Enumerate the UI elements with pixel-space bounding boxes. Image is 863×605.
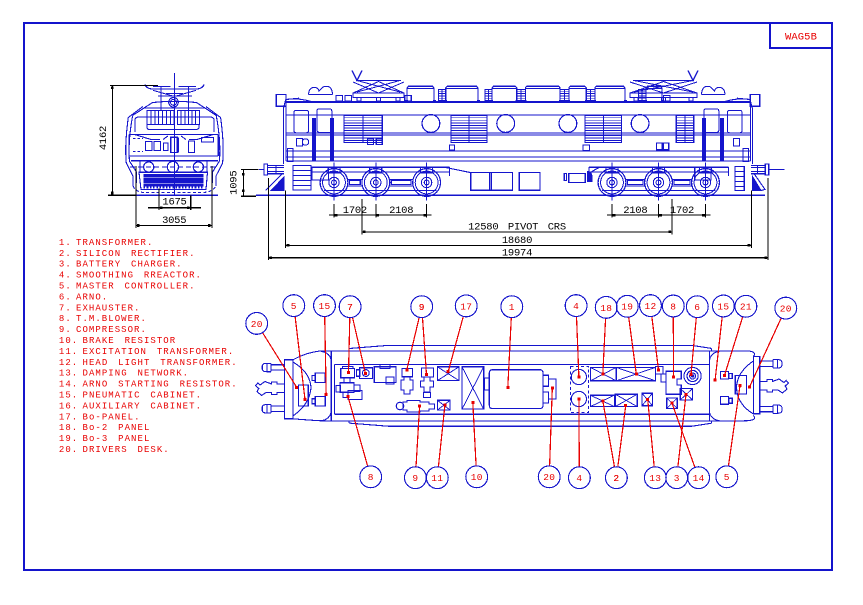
svg-text:20: 20 <box>780 304 792 315</box>
svg-text:14: 14 <box>693 473 705 484</box>
svg-text:20: 20 <box>543 472 555 483</box>
svg-text:4.: 4. <box>59 271 72 281</box>
svg-text:10.: 10. <box>59 336 78 346</box>
svg-text:21: 21 <box>740 302 752 313</box>
svg-text:5.: 5. <box>59 282 72 292</box>
svg-text:4: 4 <box>573 301 579 312</box>
svg-text:12.: 12. <box>59 358 78 368</box>
svg-text:18.: 18. <box>59 423 78 433</box>
svg-text:Bo-3 PANEL: Bo-3 PANEL <box>83 434 151 444</box>
svg-text:20.: 20. <box>59 445 78 455</box>
svg-text:WAG5B: WAG5B <box>785 32 817 44</box>
svg-text:13.: 13. <box>59 369 78 379</box>
svg-text:15.: 15. <box>59 391 78 401</box>
svg-text:SILICON RECTIFIER.: SILICON RECTIFIER. <box>76 249 196 259</box>
svg-text:TRANSFORMER.: TRANSFORMER. <box>76 238 153 248</box>
svg-text:15: 15 <box>717 301 729 312</box>
svg-text:2108: 2108 <box>389 205 413 217</box>
svg-text:T.M.BLOWER.: T.M.BLOWER. <box>76 314 147 324</box>
svg-text:BRAKE RESISTOR: BRAKE RESISTOR <box>83 336 177 346</box>
svg-text:9: 9 <box>412 473 418 484</box>
svg-text:16.: 16. <box>59 401 78 411</box>
svg-text:3: 3 <box>674 473 680 484</box>
svg-text:2108: 2108 <box>623 205 647 217</box>
svg-text:1675: 1675 <box>162 197 186 209</box>
svg-text:8: 8 <box>670 301 676 312</box>
svg-text:4162: 4162 <box>98 126 110 150</box>
svg-text:COMPRESSOR.: COMPRESSOR. <box>76 325 147 335</box>
svg-text:DAMPING NETWORK.: DAMPING NETWORK. <box>83 369 190 379</box>
svg-text:10: 10 <box>471 472 483 483</box>
svg-text:Bo-PANEL.: Bo-PANEL. <box>83 412 141 422</box>
svg-text:5: 5 <box>291 301 297 312</box>
svg-text:15: 15 <box>318 301 330 312</box>
svg-text:19974: 19974 <box>502 247 532 259</box>
svg-text:13: 13 <box>649 473 661 484</box>
svg-text:8: 8 <box>368 472 374 483</box>
svg-text:11: 11 <box>431 473 443 484</box>
svg-text:3055: 3055 <box>162 215 186 227</box>
svg-text:Bo-2 PANEL: Bo-2 PANEL <box>83 423 151 433</box>
svg-text:9.: 9. <box>59 325 72 335</box>
svg-text:ARNO.: ARNO. <box>76 292 108 302</box>
svg-text:4: 4 <box>576 473 582 484</box>
svg-text:ARNO STARTING RESISTOR.: ARNO STARTING RESISTOR. <box>83 380 238 390</box>
svg-text:EXHAUSTER.: EXHAUSTER. <box>76 303 141 313</box>
svg-text:18: 18 <box>600 303 612 314</box>
svg-text:2: 2 <box>613 473 619 484</box>
svg-text:HEAD LIGHT TRANSFORMER.: HEAD LIGHT TRANSFORMER. <box>83 358 238 368</box>
svg-text:2.: 2. <box>59 249 72 259</box>
svg-text:DRIVERS DESK.: DRIVERS DESK. <box>83 445 170 455</box>
svg-text:1095: 1095 <box>228 171 240 195</box>
svg-text:17: 17 <box>460 301 472 312</box>
svg-text:19: 19 <box>621 302 633 313</box>
svg-text:MASTER CONTROLLER.: MASTER CONTROLLER. <box>76 282 196 292</box>
svg-text:6.: 6. <box>59 292 72 302</box>
svg-text:11.: 11. <box>59 347 78 357</box>
svg-text:3.: 3. <box>59 260 72 270</box>
svg-text:14.: 14. <box>59 380 78 390</box>
svg-text:EXCITATION TRANSFORMER.: EXCITATION TRANSFORMER. <box>83 347 235 357</box>
svg-text:AUXILIARY CABINET.: AUXILIARY CABINET. <box>83 401 203 411</box>
svg-text:17.: 17. <box>59 412 78 422</box>
svg-text:7.: 7. <box>59 303 72 313</box>
svg-text:19.: 19. <box>59 434 78 444</box>
svg-text:12580 PIVOT CRS: 12580 PIVOT CRS <box>468 222 566 234</box>
svg-text:9: 9 <box>419 302 425 313</box>
svg-text:1: 1 <box>509 302 515 313</box>
svg-text:6: 6 <box>694 302 700 313</box>
svg-text:1702: 1702 <box>670 205 694 217</box>
svg-text:12: 12 <box>644 301 656 312</box>
svg-text:8.: 8. <box>59 314 72 324</box>
svg-text:20: 20 <box>251 319 263 330</box>
svg-text:PNEUMATIC CABINET.: PNEUMATIC CABINET. <box>83 391 203 401</box>
svg-text:BATTERY CHARGER.: BATTERY CHARGER. <box>76 260 183 270</box>
svg-text:5: 5 <box>724 472 730 483</box>
svg-text:1.: 1. <box>59 238 72 248</box>
svg-text:18680: 18680 <box>502 235 532 247</box>
svg-text:7: 7 <box>347 302 353 313</box>
svg-text:1702: 1702 <box>343 205 367 217</box>
svg-text:SMOOTHING RREACTOR.: SMOOTHING RREACTOR. <box>76 271 202 281</box>
